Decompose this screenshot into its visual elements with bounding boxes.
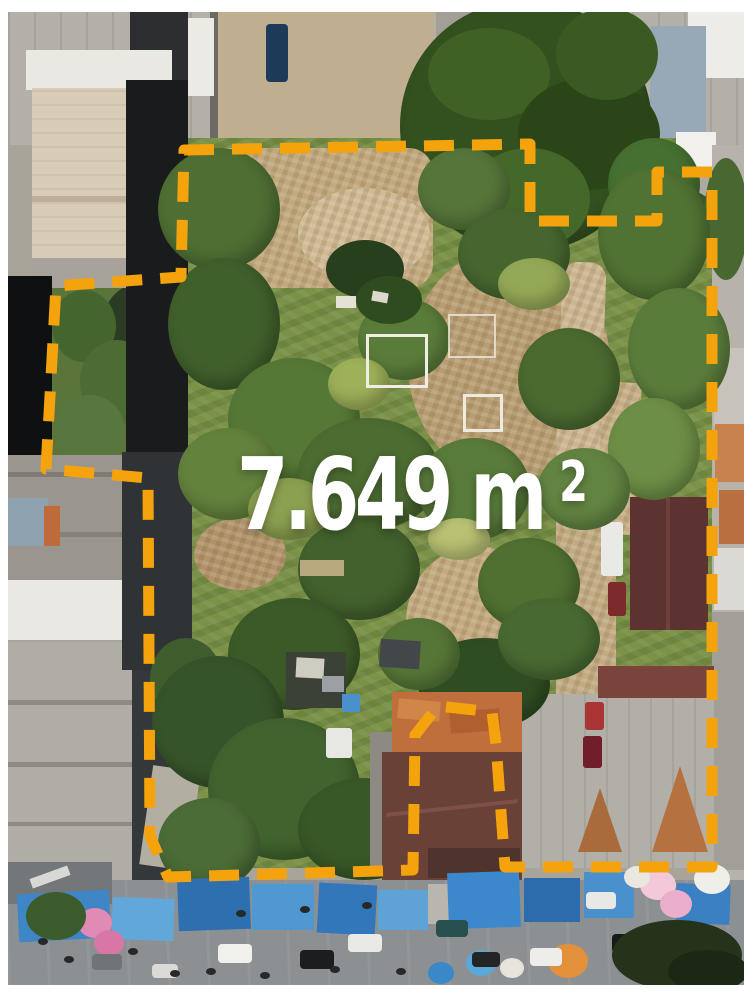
bush-light [498,258,570,310]
right-white-roof [714,548,744,610]
umbrella-pink [94,930,124,956]
palm-tree [356,276,422,324]
bush [598,168,710,300]
shack-roof [295,657,324,678]
motorbike [64,956,74,963]
bush [518,328,620,430]
umbrella-white [500,958,524,978]
area-value: 7.649 m [237,452,543,537]
left-roof-seam [8,762,136,767]
left-blue-roof [8,498,48,546]
right-orange-roof [715,424,744,482]
ruin-debris [336,296,356,308]
car-teal [436,920,468,937]
motorbike [170,970,180,977]
top-blue-truck [266,24,288,82]
street-tree [668,950,744,985]
shack-roof [300,560,344,576]
area-superscript: 2 [559,458,588,508]
left-orange-roof [44,506,60,546]
bush [158,148,280,270]
motorbike [260,972,270,979]
right-gray-roofs [712,612,744,870]
left-white-roof [8,580,130,640]
umbrella-white [624,866,650,888]
umbrella-blue [428,962,454,984]
car-black [472,952,500,967]
ruin-wall [463,394,503,432]
shack-roof [322,676,344,692]
left-black-alley [8,276,52,474]
left-roof-seam [8,472,140,477]
ruin-wall [448,314,496,358]
car-white [586,892,616,909]
warehouse-red-strip [598,666,714,698]
umbrella-pink [660,890,692,918]
blue-tarp [342,694,360,712]
bush [628,288,730,410]
area-label-inner: 7.649 m 2 [237,452,588,537]
car-white [348,934,382,952]
photo-frame: 7.649 m 2 [0,0,756,1000]
car-black [300,950,334,969]
red-car [585,702,604,730]
left-roof-seam [8,822,136,826]
car-white [530,948,562,966]
market-tarp [378,890,428,930]
shack [379,639,421,670]
right-tree [704,158,744,280]
area-label: 7.649 m 2 [237,452,711,537]
house-orange-texture [449,708,500,733]
top-white-building [188,18,214,96]
umbrella-white [694,864,730,894]
market-tarp [177,877,251,931]
big-tree-top [556,12,658,100]
motorbike [362,902,372,909]
motorbike [128,948,138,955]
market-tarp [317,883,378,936]
white-truck [326,728,352,758]
market-tarp [524,878,580,922]
motorbike [330,966,340,973]
motorbike [38,938,48,945]
tree [498,598,600,680]
house-orange-texture [397,698,441,722]
street-tree [26,892,86,940]
right-orange-roof [719,490,744,544]
motorbike [300,906,310,913]
red-truck [608,582,626,616]
red-car [583,736,602,768]
left-roof-seam [8,700,136,705]
car-white [218,944,252,963]
motorbike [236,910,246,917]
car-gray [92,954,122,970]
motorbike [206,968,216,975]
left-dark-alley [126,80,188,456]
motorbike [396,968,406,975]
ruin-wall [366,334,428,388]
